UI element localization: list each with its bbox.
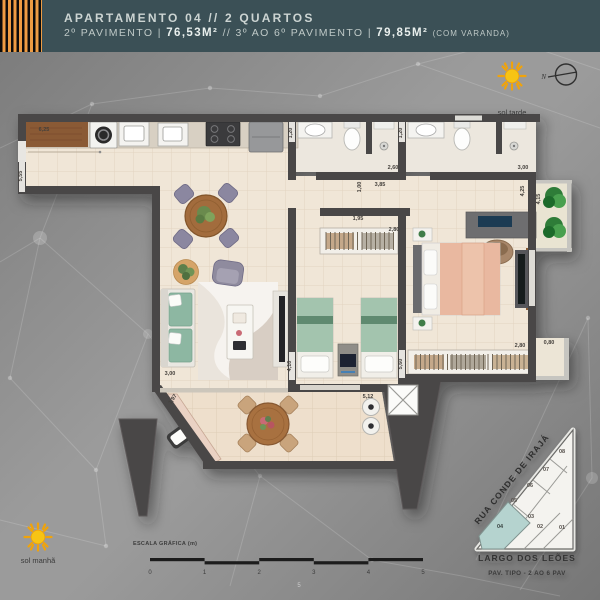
header-band: APARTAMENTO 04 // 2 QUARTOS 2º PAVIMENTO…	[0, 0, 600, 52]
dimension-label: 6,25	[39, 127, 50, 133]
dimension-label: 3,85	[375, 182, 386, 188]
twin-bed	[361, 298, 397, 378]
minimap-unit-06: 06	[527, 483, 533, 489]
dimension-label: 2,60	[388, 165, 399, 171]
apartment-title: APARTAMENTO 04 // 2 QUARTOS	[64, 11, 600, 26]
minimap-unit-03: 03	[528, 514, 534, 520]
minimap-unit-08: 08	[559, 449, 565, 455]
scale-bar-title: ESCALA GRÁFICA (m)	[133, 540, 197, 547]
structural-column-left	[119, 419, 157, 516]
sun-icon	[25, 524, 52, 551]
sofa	[161, 289, 195, 367]
bedroom-2	[408, 212, 536, 374]
minimap-caption: PAV. TIPO - 2 AO 6 PAV	[488, 570, 566, 577]
subtitle-floors3to6: // 3º AO 6º PAVIMENTO |	[218, 27, 376, 39]
scale-tick-3: 3	[312, 570, 316, 576]
dimension-label: 1,95	[353, 216, 364, 222]
scale-bar: ESCALA GRÁFICA (m) 012345	[133, 540, 425, 576]
dimension-label: 2,80	[389, 227, 400, 233]
minimap-unit-05: 05	[511, 498, 517, 504]
sun-icon	[499, 63, 526, 90]
subtitle-floor2: 2º PAVIMENTO |	[64, 27, 166, 39]
dimension-label: 4,10	[287, 361, 293, 372]
minimap-unit-07: 07	[543, 467, 549, 473]
twin-bed	[297, 298, 333, 378]
dimension-label: 4,15	[536, 194, 542, 205]
elevator-cab	[388, 385, 418, 415]
toilet	[454, 128, 470, 150]
street-label-bottom: LARGO DOS LEÕES	[478, 553, 576, 563]
subtitle-veranda-note: (COM VARANDA)	[433, 29, 510, 38]
dimension-label: 2,80	[515, 343, 526, 349]
sun-morning-label: sol manhã	[21, 556, 56, 565]
tv-panel	[273, 291, 288, 367]
scale-bar-segments	[150, 558, 423, 564]
brand-stripes-logo	[0, 0, 42, 52]
scale-tick-1: 1	[203, 570, 207, 576]
scale-tick-5: 5	[421, 570, 425, 576]
dimension-label: 3,00	[518, 165, 529, 171]
toilet	[344, 128, 360, 150]
subtitle-area-floors3to6: 79,85M²	[376, 27, 428, 39]
sun-afternoon: sol tarde	[498, 63, 527, 118]
minimap-unit-01: 01	[559, 525, 565, 531]
wardrobe-master	[408, 350, 534, 374]
dimension-label: 5,12	[363, 394, 374, 400]
compass-north-label: N	[540, 73, 546, 81]
subtitle-area-floor2: 76,53M²	[166, 27, 218, 39]
scale-tick-4: 4	[367, 570, 371, 576]
page-root: 6,255,551,201,202,603,001,003,854,254,15…	[0, 0, 600, 600]
apartment-subtitle: 2º PAVIMENTO | 76,53M² // 3º AO 6º PAVIM…	[64, 26, 600, 41]
scale-tick-2: 2	[258, 570, 262, 576]
minimap-unit-02: 02	[537, 524, 543, 530]
armchair	[211, 259, 244, 287]
dimension-label: 0,80	[544, 340, 555, 346]
minimap-unit-04: 04	[497, 524, 504, 530]
dimension-label: 3,00	[165, 371, 176, 377]
dimension-label: 1,00	[357, 182, 363, 193]
compass-icon: N	[540, 64, 577, 85]
coffee-table	[227, 305, 253, 359]
sun-morning: sol manhã	[21, 524, 56, 566]
floorplan-canvas: 6,255,551,201,202,603,001,003,854,254,15…	[0, 0, 600, 600]
stove	[206, 122, 240, 146]
double-bed	[413, 228, 500, 330]
dimension-label: 5,60	[398, 359, 404, 370]
dimension-label: 4,25	[520, 186, 526, 197]
scale-tick-0: 0	[148, 570, 152, 576]
dimension-label: 5,55	[18, 171, 24, 182]
page-marker: 5	[297, 583, 301, 589]
tv-console	[338, 344, 358, 376]
dimension-label: 1,20	[288, 128, 294, 139]
wardrobe	[320, 228, 398, 254]
sun-afternoon-label: sol tarde	[498, 108, 527, 117]
location-minimap: RUA CONDE DE IRAJÁ LARGO DOS LEÕES PAV. …	[472, 430, 576, 577]
dimension-label: 1,20	[398, 128, 404, 139]
floor-plan	[18, 114, 572, 516]
header-titles: APARTAMENTO 04 // 2 QUARTOS 2º PAVIMENTO…	[42, 0, 600, 52]
scale-bar-ticks: 012345	[148, 570, 425, 576]
